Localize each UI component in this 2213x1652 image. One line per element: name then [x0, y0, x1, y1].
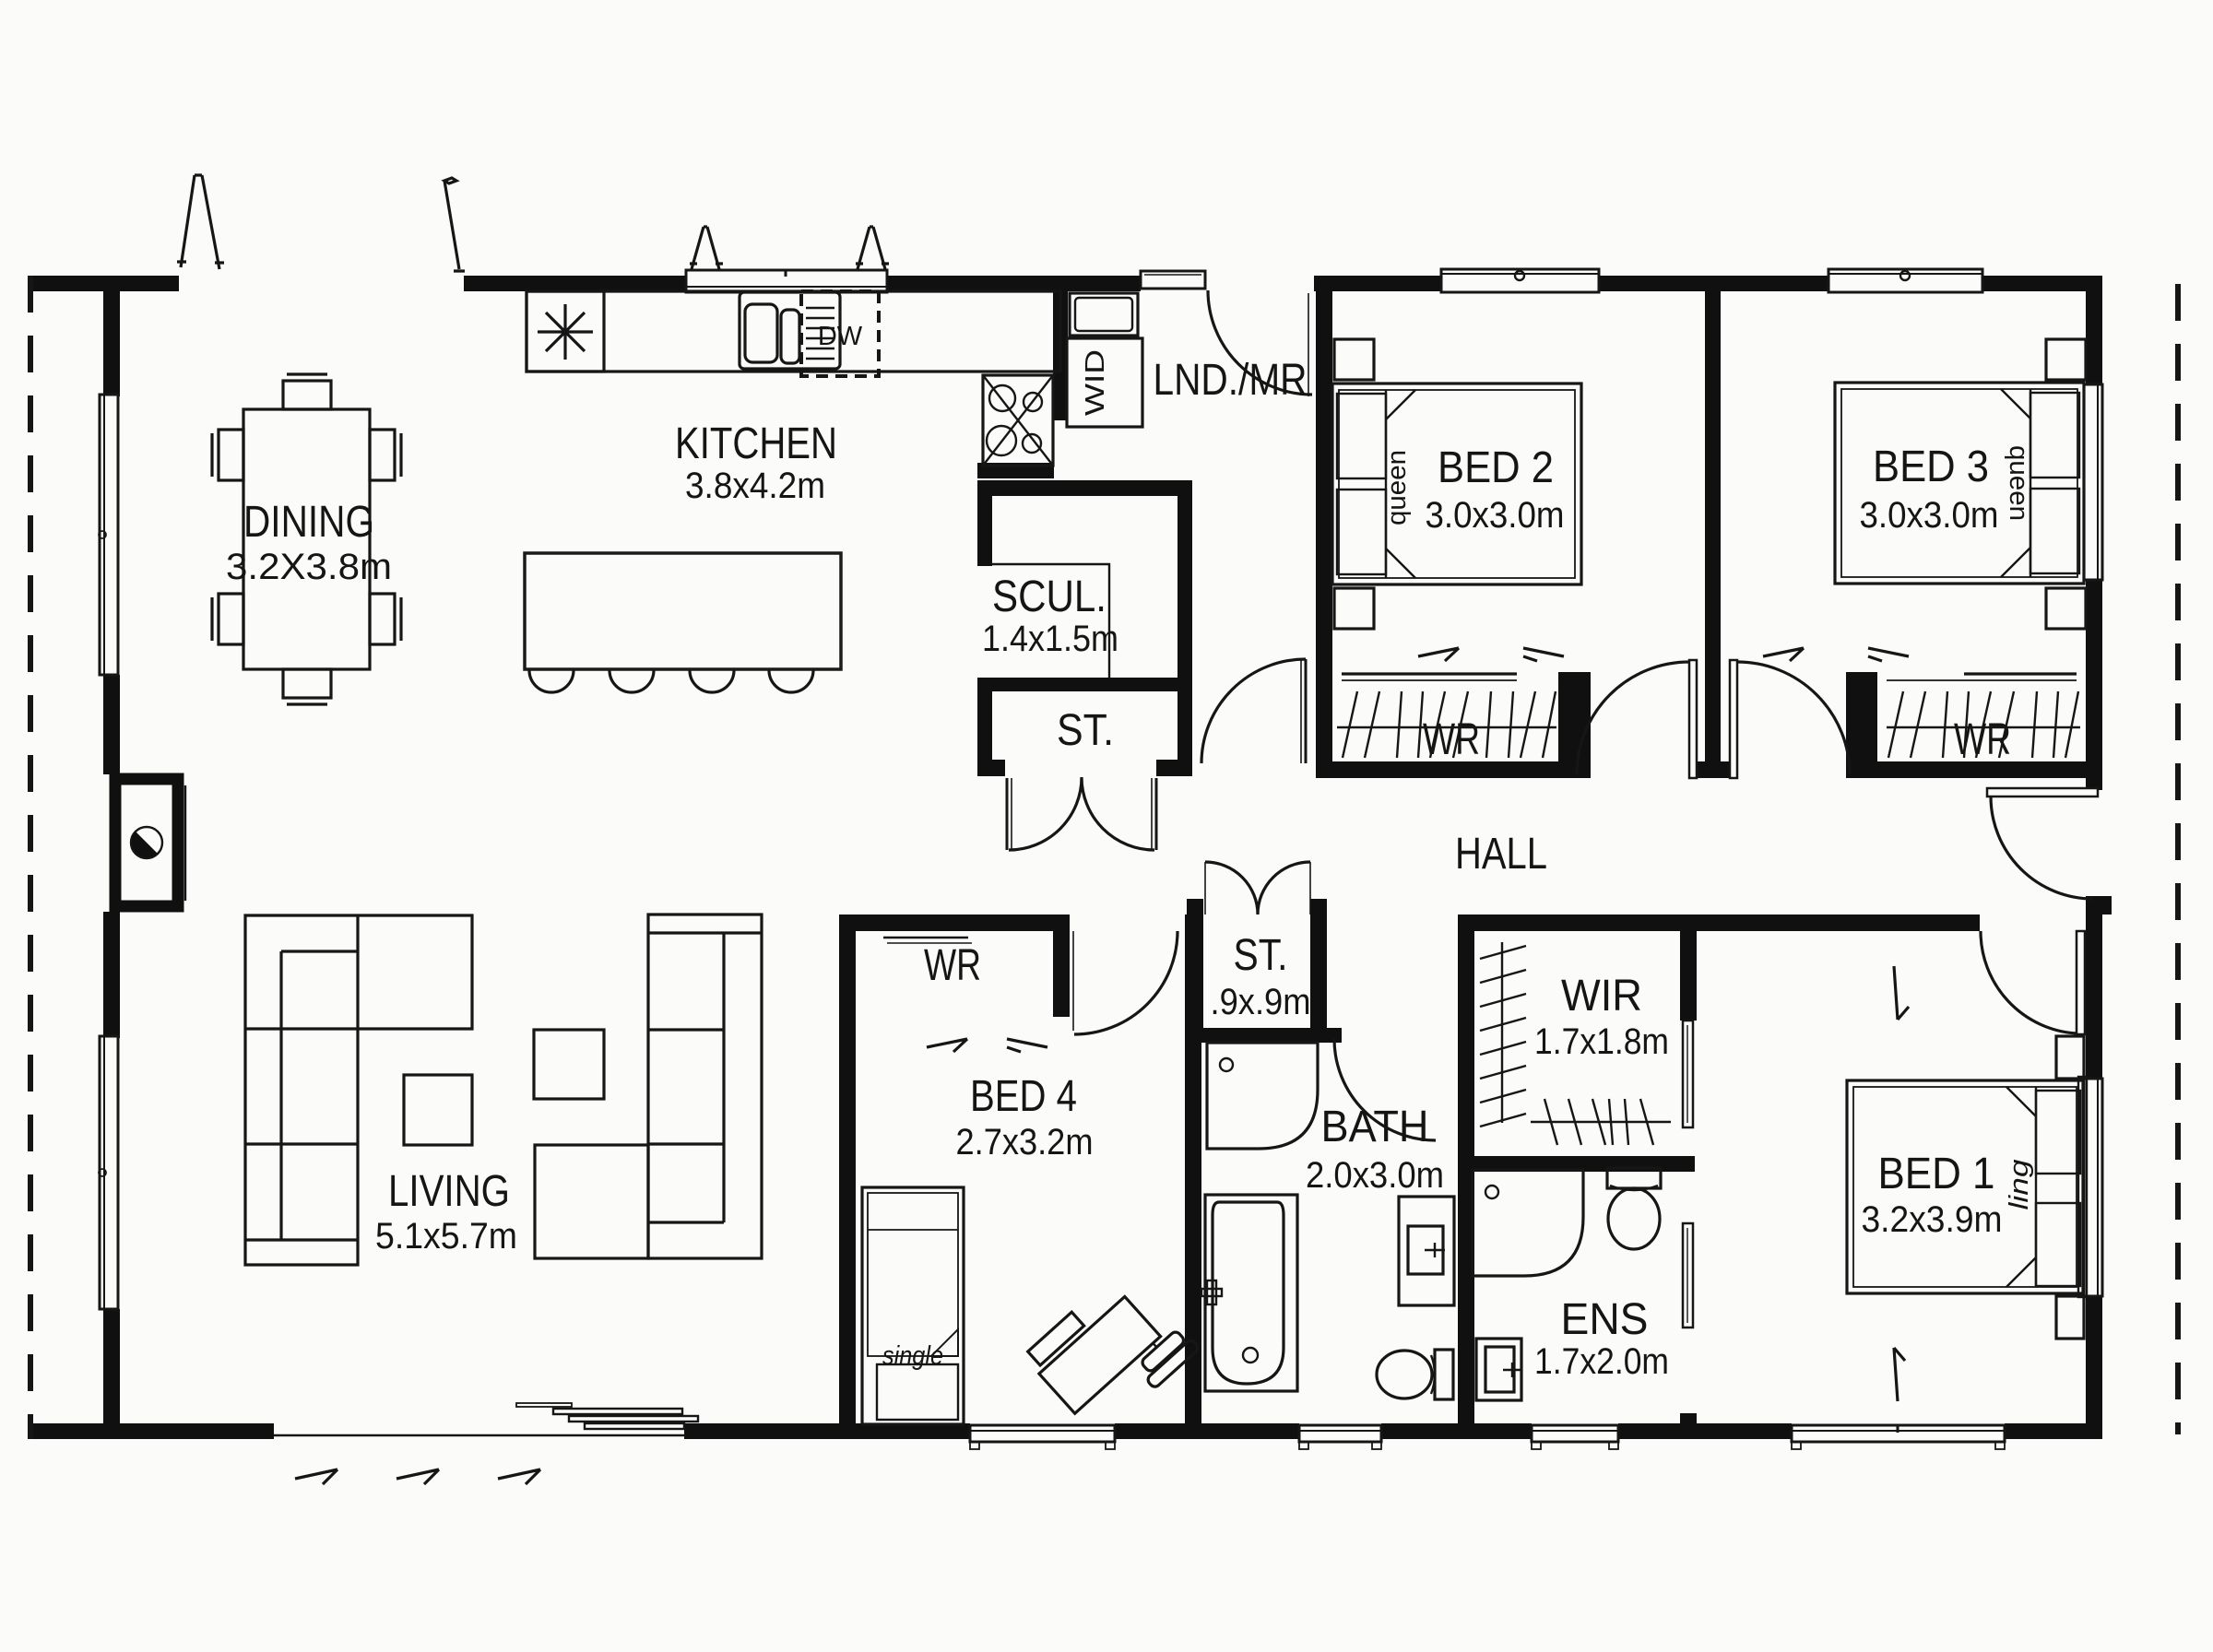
svg-text:3.2x3.9m: 3.2x3.9m: [1862, 1199, 2003, 1240]
svg-text:ST.: ST.: [1234, 931, 1288, 980]
svg-text:2.7x3.2m: 2.7x3.2m: [956, 1122, 1094, 1162]
svg-text:1.7x1.8m: 1.7x1.8m: [1534, 1021, 1669, 1062]
svg-text:1.7x2.0m: 1.7x2.0m: [1534, 1341, 1669, 1382]
svg-text:queen: queen: [2004, 445, 2033, 521]
svg-text:BATH: BATH: [1321, 1103, 1429, 1151]
svg-text:3.8x4.2m: 3.8x4.2m: [685, 466, 825, 506]
svg-text:KITCHEN: KITCHEN: [675, 419, 837, 468]
svg-text:ling: ling: [2005, 1160, 2034, 1210]
svg-text:BED 3: BED 3: [1873, 442, 1989, 491]
svg-text:HALL: HALL: [1455, 830, 1547, 879]
svg-text:queen: queen: [1382, 450, 1412, 525]
svg-text:DINING: DINING: [243, 498, 374, 547]
svg-text:LND./MR: LND./MR: [1154, 356, 1308, 405]
svg-text:WID: WID: [1081, 349, 1110, 416]
svg-text:WIR: WIR: [1561, 972, 1642, 1021]
svg-text:1.4x1.5m: 1.4x1.5m: [982, 619, 1118, 659]
svg-text:3.2X3.8m: 3.2X3.8m: [226, 547, 392, 587]
svg-text:BED 4: BED 4: [970, 1072, 1077, 1121]
svg-text:DW: DW: [818, 322, 863, 351]
svg-text:2.0x3.0m: 2.0x3.0m: [1306, 1155, 1444, 1196]
svg-text:WR: WR: [1954, 715, 2011, 764]
svg-text:WR: WR: [1423, 715, 1480, 764]
svg-text:3.0x3.0m: 3.0x3.0m: [1426, 495, 1565, 536]
svg-text:ST.: ST.: [1057, 706, 1114, 755]
svg-text:LIVING: LIVING: [388, 1167, 510, 1216]
svg-text:single: single: [882, 1341, 943, 1371]
svg-text:3.0x3.0m: 3.0x3.0m: [1860, 495, 1999, 536]
svg-text:.9x.9m: .9x.9m: [1211, 982, 1311, 1022]
svg-text:BED 1: BED 1: [1878, 1150, 1995, 1198]
svg-text:BED 2: BED 2: [1438, 443, 1554, 492]
svg-text:SCUL.: SCUL.: [992, 572, 1106, 621]
svg-text:5.1x5.7m: 5.1x5.7m: [375, 1216, 517, 1257]
svg-text:ENS: ENS: [1561, 1295, 1649, 1344]
svg-text:WR: WR: [924, 941, 981, 990]
